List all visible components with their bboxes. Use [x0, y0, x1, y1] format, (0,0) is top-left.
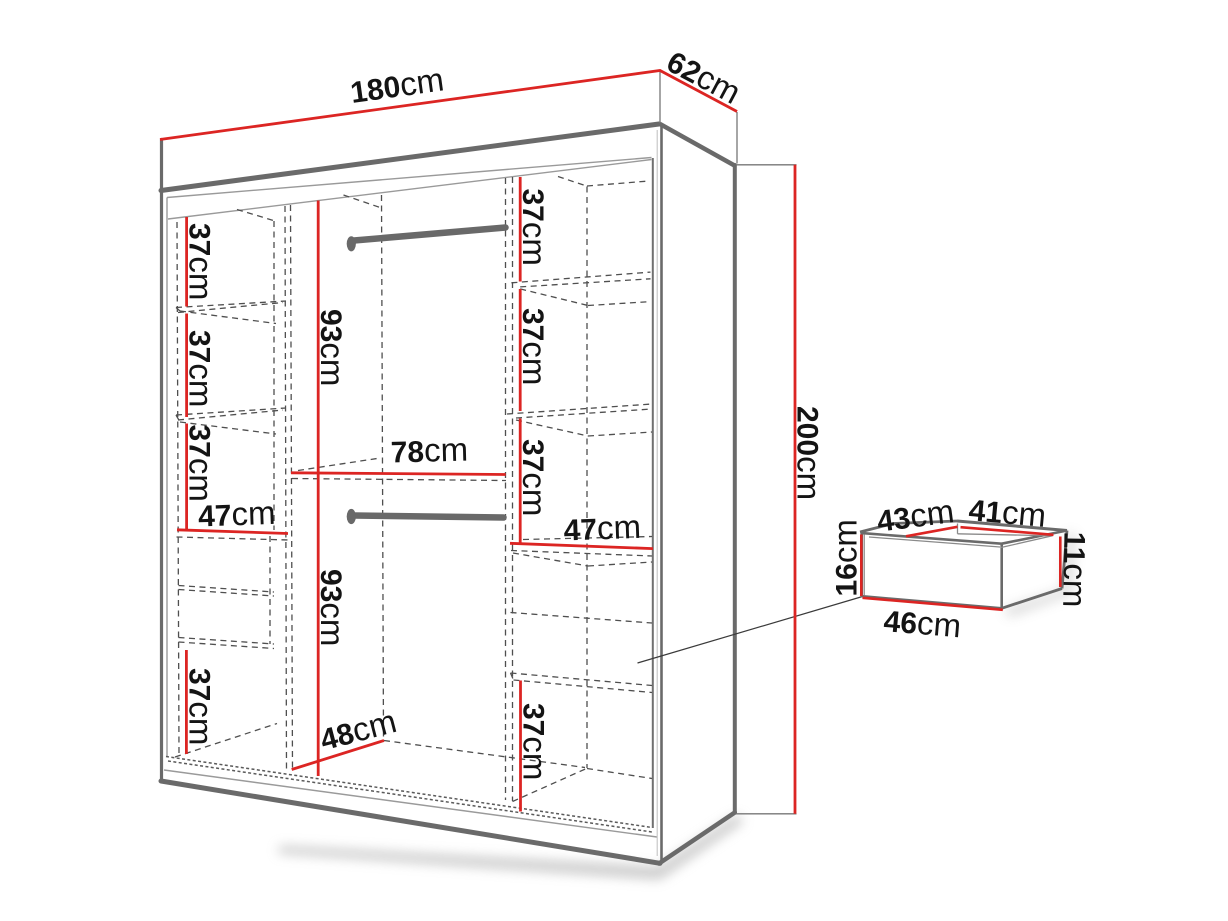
svg-text:46cm: 46cm — [882, 601, 962, 644]
svg-text:37cm: 37cm — [182, 668, 219, 745]
svg-text:37cm: 37cm — [516, 308, 553, 385]
svg-text:47cm: 47cm — [197, 494, 276, 534]
svg-text:37cm: 37cm — [183, 330, 220, 407]
svg-text:93cm: 93cm — [314, 569, 351, 646]
svg-text:11cm: 11cm — [1056, 531, 1094, 607]
svg-text:37cm: 37cm — [516, 439, 553, 516]
svg-text:93cm: 93cm — [314, 309, 351, 386]
svg-text:37cm: 37cm — [517, 703, 554, 780]
svg-text:16cm: 16cm — [827, 519, 864, 596]
svg-text:37cm: 37cm — [183, 223, 220, 300]
svg-text:37cm: 37cm — [183, 425, 220, 502]
svg-text:200cm: 200cm — [791, 406, 828, 500]
svg-text:37cm: 37cm — [516, 189, 553, 266]
svg-text:47cm: 47cm — [563, 508, 642, 548]
svg-text:41cm: 41cm — [967, 490, 1047, 534]
svg-text:78cm: 78cm — [390, 430, 468, 469]
